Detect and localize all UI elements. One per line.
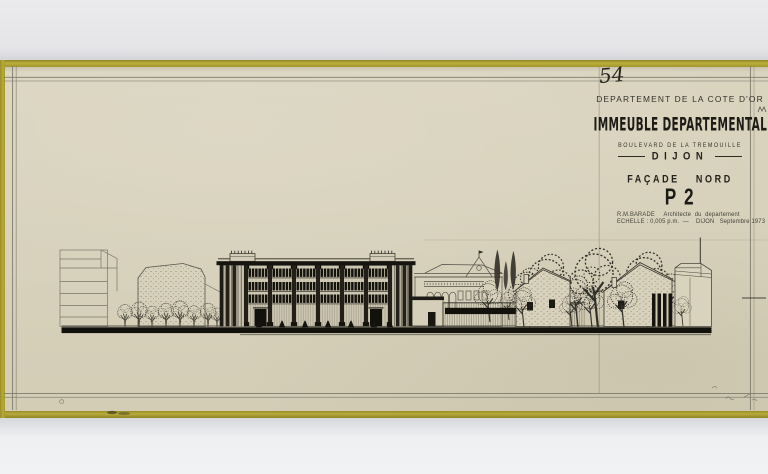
scale-line: ECHELLE : 0,005 p.m. — DIJON Septembre 1… <box>617 218 765 225</box>
city-line: DIJON <box>558 151 768 162</box>
dash-right <box>715 156 742 158</box>
plan-number: P 2 <box>580 185 768 212</box>
project-title-text: IMMEUBLE DEPARTEMENTAL <box>593 114 767 136</box>
department-line: DEPARTEMENT DE LA COTE D'OR <box>558 94 768 104</box>
architect-line: R.M.BARADE Architecte du departement <box>617 211 740 218</box>
sheet-number: 54 <box>598 62 625 88</box>
city-text: DIJON <box>652 150 709 163</box>
address-line: BOULEVARD DE LA TREMOUILLE <box>576 142 768 149</box>
scanned-architectural-sheet: 54 DEPARTEMENT DE LA COTE D'OR IMMEUBLE … <box>0 0 768 474</box>
project-title: IMMEUBLE DEPARTEMENTAL <box>558 116 768 134</box>
dash-left <box>618 156 645 158</box>
title-block: 54 DEPARTEMENT DE LA COTE D'OR IMMEUBLE … <box>0 0 768 474</box>
view-label: FAÇADE NORD <box>558 173 768 185</box>
